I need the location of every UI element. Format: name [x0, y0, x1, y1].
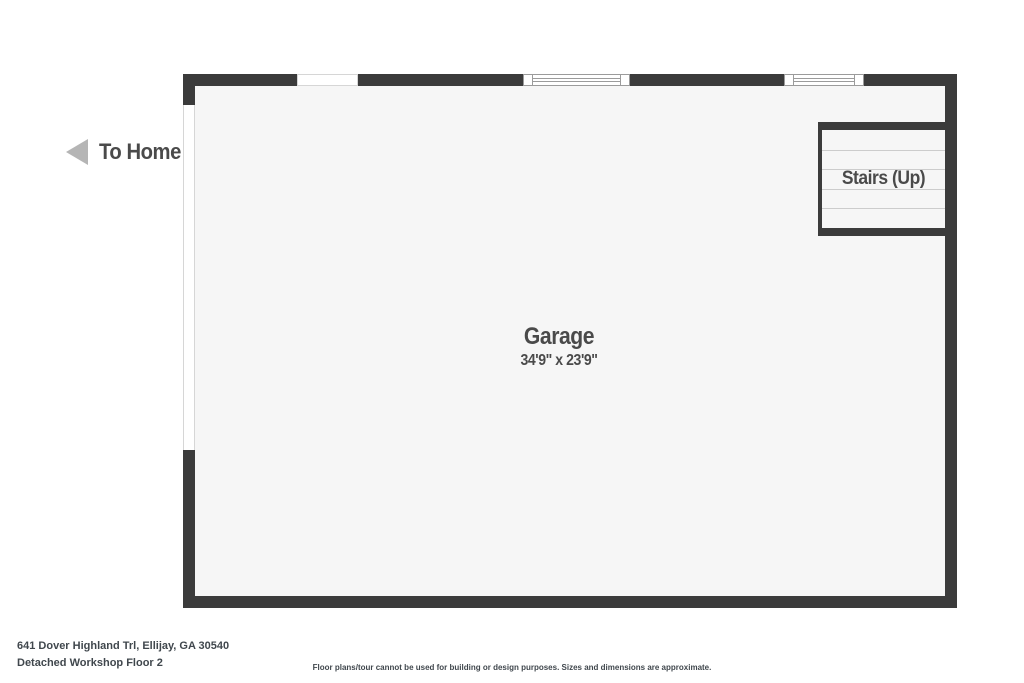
window-top-center — [523, 74, 630, 86]
wall-right — [945, 74, 957, 608]
room-name: Garage — [521, 323, 598, 351]
wall-top-segment-3 — [630, 74, 784, 86]
floor-plan: Stairs (Up) Garage 34'9" x 23'9" — [183, 74, 957, 608]
window-top-right — [784, 74, 864, 86]
window-glass — [533, 78, 620, 82]
footer-disclaimer: Floor plans/tour cannot be used for buil… — [0, 663, 1024, 672]
window-glass — [794, 78, 854, 82]
footer-address: 641 Dover Highland Trl, Ellijay, GA 3054… — [17, 640, 229, 652]
window-post — [620, 74, 630, 86]
back-arrow-icon — [66, 139, 88, 165]
stairs-label: Stairs (Up) — [827, 130, 940, 228]
wall-left-segment-bottom — [183, 450, 195, 608]
to-home-link[interactable]: To Home — [66, 134, 188, 170]
room-label-garage: Garage 34'9" x 23'9" — [515, 323, 602, 370]
room-dimensions: 34'9" x 23'9" — [521, 352, 598, 370]
floor-plan-canvas: To Home — [0, 0, 1024, 683]
garage-door-opening-left-wall — [183, 105, 195, 450]
window-post — [784, 74, 794, 86]
wall-left-segment-top — [183, 74, 195, 105]
wall-top-segment-1 — [183, 74, 297, 86]
to-home-label: To Home — [99, 139, 181, 165]
stairs-area: Stairs (Up) — [818, 122, 945, 236]
window-post — [523, 74, 533, 86]
door-opening-top-wall — [297, 74, 358, 86]
wall-top-segment-4 — [864, 74, 957, 86]
window-post — [854, 74, 864, 86]
stairs-wall-top — [818, 122, 945, 130]
stairs-wall-bottom — [818, 228, 945, 236]
wall-bottom — [183, 596, 957, 608]
